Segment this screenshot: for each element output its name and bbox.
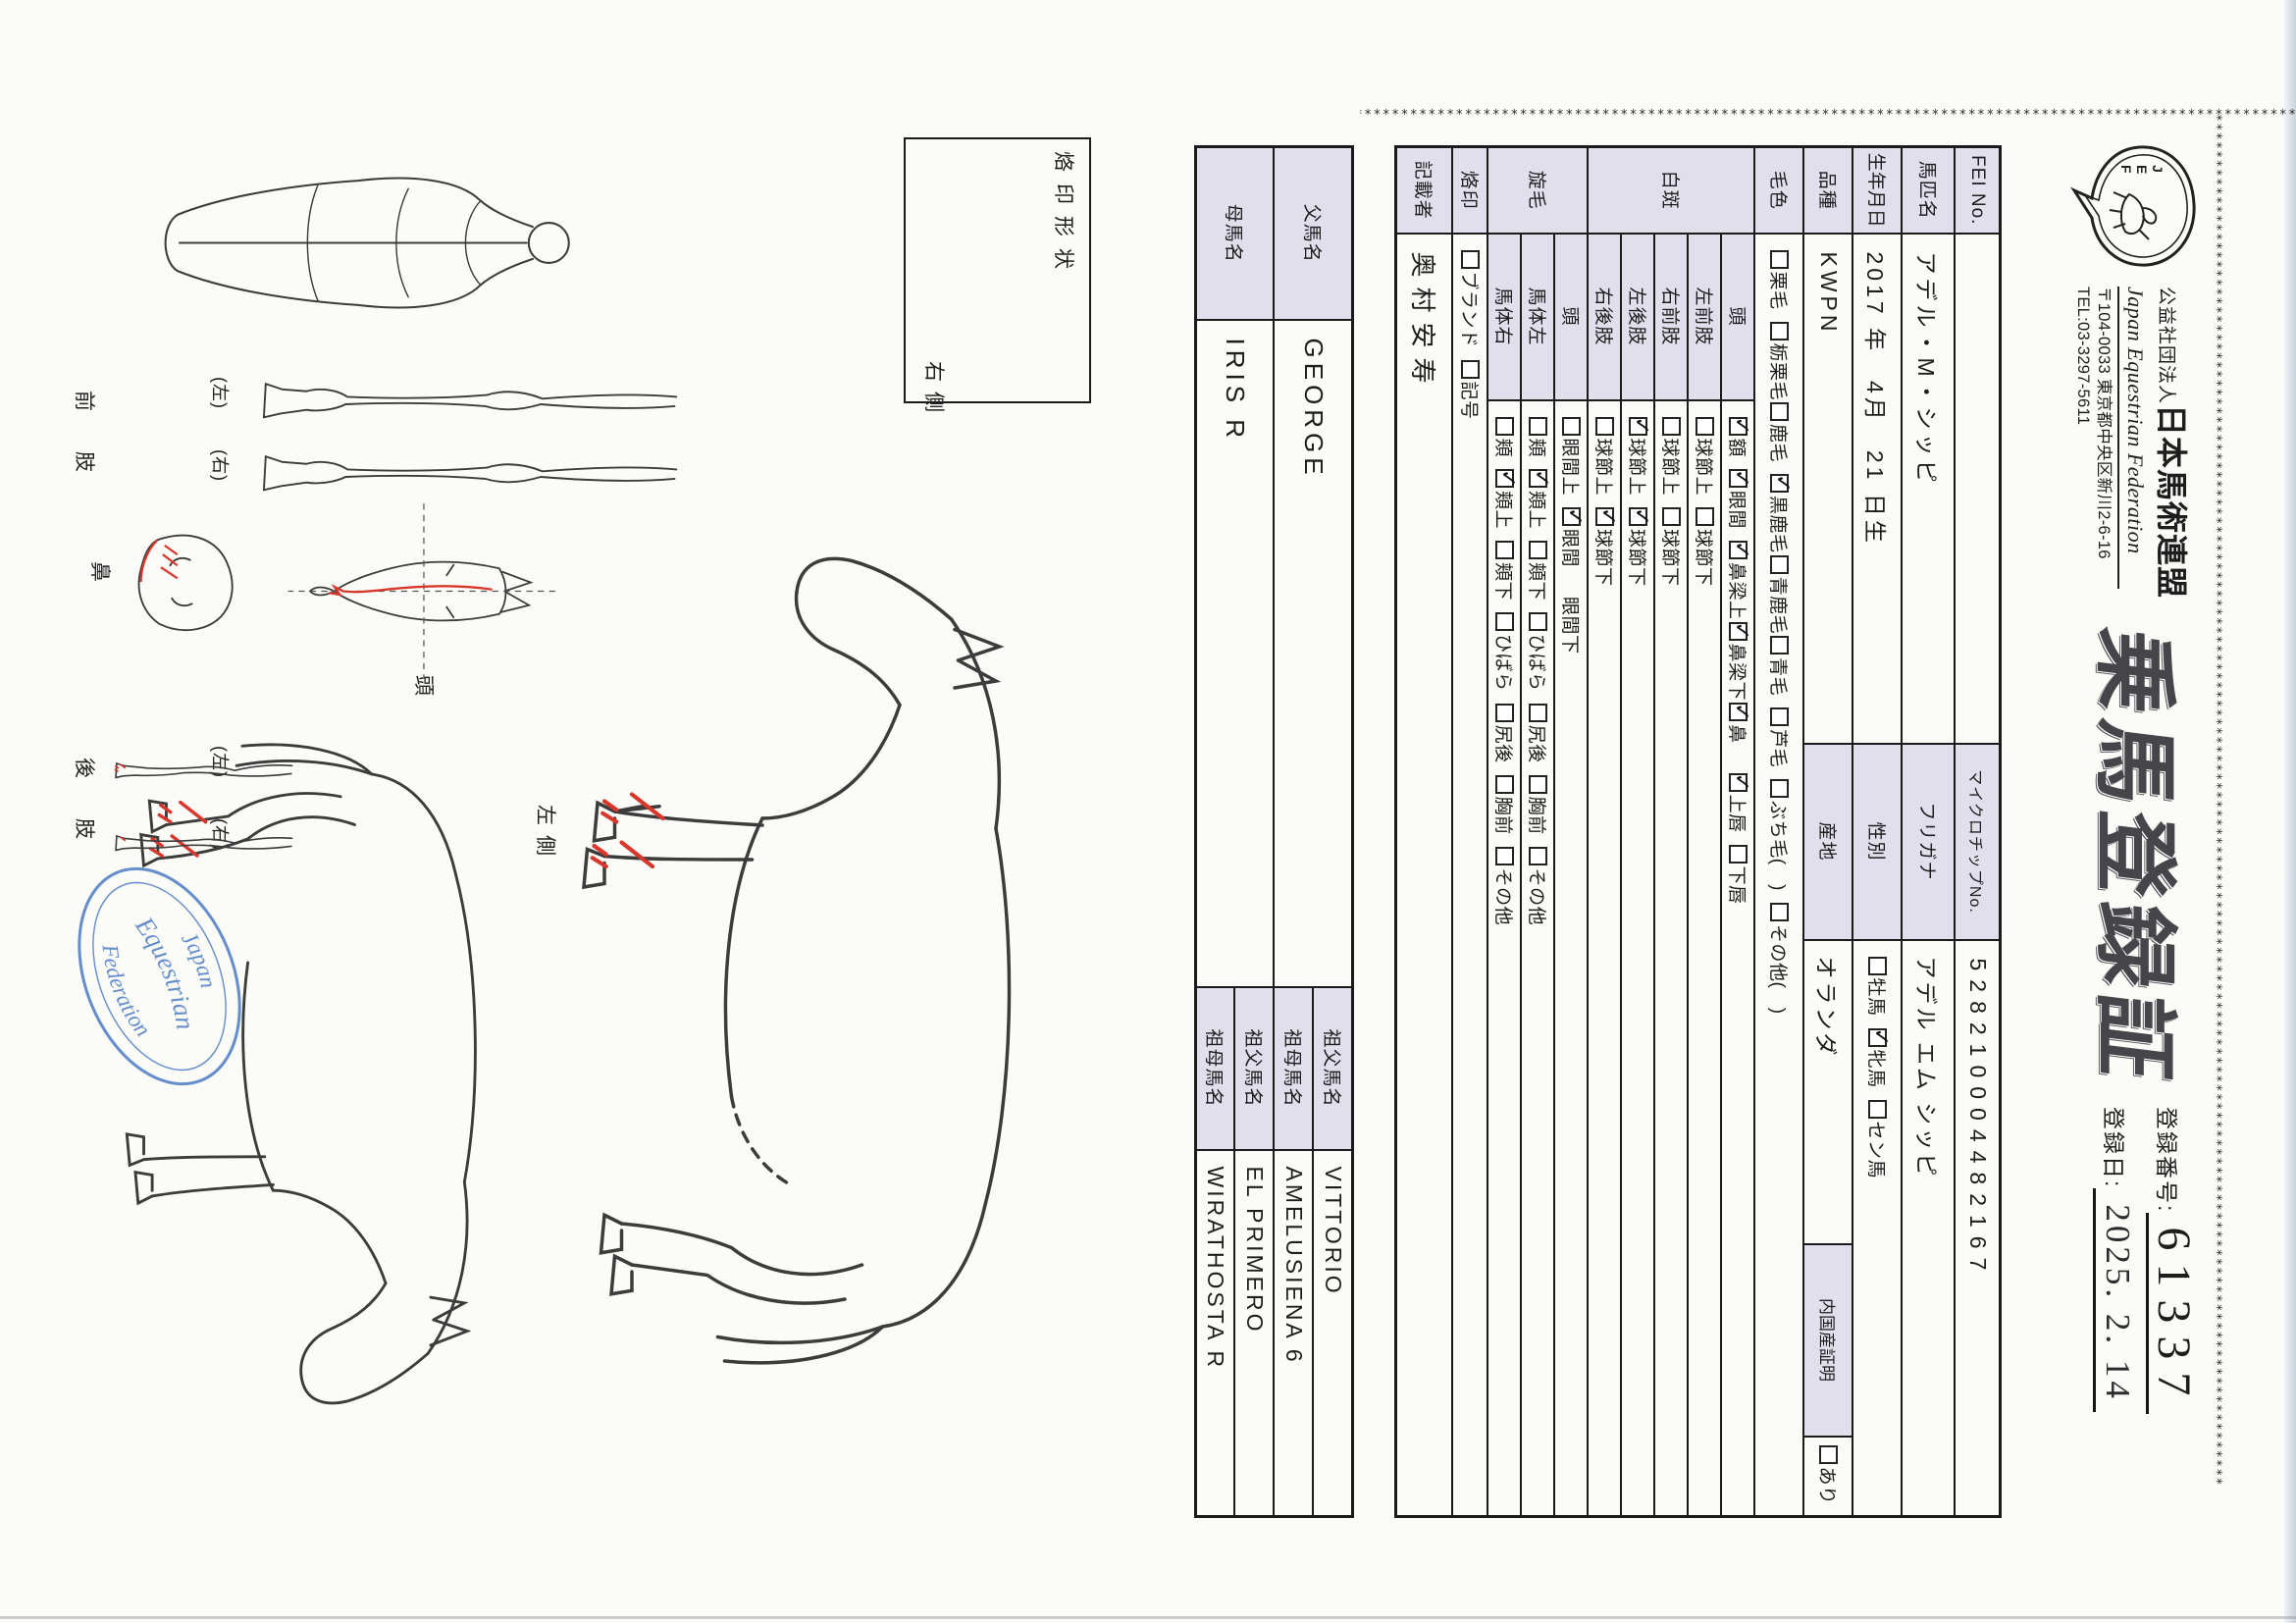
table-row: 左後肢 球節上球節下 — [1622, 147, 1655, 1517]
whorl-body-right-label: 馬体右 — [1488, 234, 1522, 400]
checkbox-option: ひばら — [1491, 612, 1518, 692]
origin-label: 産地 — [1804, 744, 1853, 940]
checkbox-option: 球節下 — [1658, 507, 1685, 587]
red-muzzle-marking — [141, 540, 178, 582]
checkbox-option-label: 鼻梁上 — [1725, 562, 1751, 620]
checkbox-option-label: ひばら — [1491, 634, 1518, 692]
checkbox-option-label: 牡馬 — [1864, 978, 1891, 1017]
checkbox-option: 鼻 — [1725, 703, 1751, 744]
checkbox-option-label: 頬 — [1525, 439, 1551, 458]
table-row: FEI No. マイクロチップNo. 528210004482167 — [1956, 147, 2001, 1517]
fei-no-value — [1956, 234, 2001, 744]
checkbox-unchecked — [1662, 507, 1681, 526]
sire-granddam-name: AMELUSIENA 6 — [1275, 1150, 1314, 1517]
checkbox-unchecked — [1729, 845, 1748, 864]
table-row: 右前肢 球節上球節下 — [1655, 147, 1689, 1517]
wm-right-hind-options: 球節上球節下 — [1589, 400, 1622, 1517]
checkbox-option-label: ブランド — [1457, 272, 1484, 348]
horse-name-label: 馬匹名 — [1903, 147, 1956, 234]
checkbox-option: 眼間 — [1725, 469, 1751, 529]
table-row: 左前肢 球節上球節下 — [1689, 147, 1722, 1517]
checkbox-option-label: 球節下 — [1658, 529, 1685, 587]
registration-number-label: 登録番号: — [2146, 1107, 2185, 1213]
breed-label: 品種 — [1804, 147, 1853, 234]
asterisk-border-top: ****************************************… — [2208, 114, 2223, 1486]
checkbox-option: セン馬 — [1864, 1100, 1891, 1179]
checkbox-option-label: 眼間下 — [1558, 597, 1585, 654]
checkbox-unchecked — [1529, 775, 1547, 794]
front-limbs-label: 前 肢 — [71, 391, 100, 482]
checkbox-checked — [1495, 469, 1514, 488]
checkbox-unchecked — [1770, 779, 1789, 798]
coat-color-label: 毛色 — [1755, 147, 1804, 234]
white-markings-label: 白斑 — [1589, 147, 1755, 234]
checkbox-checked — [1729, 417, 1748, 436]
table-row: 白斑 頭 額眼間鼻梁上鼻梁下鼻上唇下唇 — [1722, 147, 1755, 1517]
registration-date-label: 登録日: — [2093, 1107, 2132, 1188]
checkbox-checked — [1729, 469, 1748, 488]
checkbox-option-label: 下唇 — [1725, 866, 1751, 905]
checkbox-option-label: 青鹿毛 — [1766, 577, 1793, 635]
checkbox-checked — [1770, 474, 1789, 493]
checkbox-option: その他 — [1525, 847, 1551, 926]
checkbox-option: 上唇 — [1725, 773, 1751, 833]
checkbox-option-label: 鼻梁下 — [1725, 644, 1751, 702]
checkbox-option-label: 胸前 — [1491, 797, 1518, 835]
checkbox-option: 青毛 — [1766, 636, 1793, 696]
checkbox-option: 青鹿毛 — [1766, 555, 1793, 635]
checkbox-option-label: 額 — [1725, 439, 1751, 458]
checkbox-option-label: 球節上 — [1592, 439, 1618, 497]
hind-leg-left-view — [108, 744, 294, 799]
checkbox-option: 頬 — [1525, 417, 1551, 458]
sex-label: 性別 — [1853, 744, 1903, 940]
checkbox-checked — [1629, 417, 1647, 436]
sire-grandsire-name: VITTORIO — [1314, 1150, 1353, 1517]
checkbox-option-label: 鼻 — [1725, 724, 1751, 744]
table-row: 父馬名 GEORGE 祖父馬名 VITTORIO — [1314, 147, 1353, 1517]
pedigree-table: 父馬名 GEORGE 祖父馬名 VITTORIO 祖母馬名 AMELUSIENA… — [1194, 145, 1354, 1518]
checkbox-checked — [1595, 507, 1614, 526]
checkbox-option-label: ぶち毛( ) — [1766, 801, 1793, 891]
checkbox-option: 眼間 — [1558, 507, 1585, 567]
front-leg-right-view — [245, 447, 682, 506]
table-row: 毛色 栗毛栃栗毛鹿毛黒鹿毛青鹿毛青毛芦毛ぶち毛( )その他( ) — [1755, 147, 1804, 1517]
checkbox-unchecked — [1770, 903, 1789, 921]
brand-label: 烙印 — [1453, 147, 1488, 234]
checkbox-option: 球節下 — [1625, 507, 1651, 587]
checkbox-option-label: 芦毛 — [1766, 729, 1793, 767]
checkbox-unchecked — [1696, 507, 1714, 526]
whorl-body-left-label: 馬体左 — [1522, 234, 1555, 400]
checkbox-unchecked — [1770, 402, 1789, 421]
checkbox-option: 眼間上 — [1558, 417, 1585, 497]
checkbox-option: 黒鹿毛 — [1766, 474, 1793, 553]
checkbox-option: 尻後 — [1525, 704, 1551, 763]
checkbox-option-label: その他 — [1491, 868, 1518, 926]
checkbox-unchecked — [1868, 1100, 1887, 1119]
whorl-body-left-options: 頬頬上頬下ひばら尻後胸前その他 — [1522, 400, 1555, 1517]
checkbox-option: 頬上 — [1525, 469, 1551, 529]
checkbox-option: 芦毛 — [1766, 707, 1793, 767]
checkbox-option: ブランド — [1457, 250, 1484, 348]
checkbox-option: あり — [1815, 1445, 1842, 1505]
checkbox-option: 牡馬 — [1864, 957, 1891, 1017]
checkbox-option-label: その他( ) — [1766, 924, 1793, 1015]
checkbox-option: 頬下 — [1491, 541, 1518, 601]
checkbox-option: 記号 — [1457, 360, 1484, 420]
checkbox-option: 球節上 — [1692, 417, 1718, 497]
front-right-paren: (右) — [208, 449, 234, 482]
checkbox-checked — [1729, 773, 1748, 792]
checkbox-checked — [1729, 541, 1748, 559]
checkbox-option-label: 尻後 — [1491, 725, 1518, 763]
table-row: 烙印 ブランド記号 — [1453, 147, 1488, 1517]
dam-grandsire-name: EL PRIMERO — [1235, 1150, 1275, 1517]
birthdate-label: 生年月日 — [1853, 147, 1903, 234]
wm-head-options: 額眼間鼻梁上鼻梁下鼻上唇下唇 — [1722, 400, 1755, 1517]
scan-edge-artifact — [2284, 0, 2296, 1623]
table-row: 生年月日 2017 年 4月 21 日生 性別 牡馬牝馬セン馬 — [1853, 147, 1903, 1517]
jef-stamp: Japan Equestrian Federation — [74, 854, 245, 1099]
page-title: 乗馬登録証 — [2081, 622, 2204, 1093]
wm-right-hind-label: 右後肢 — [1589, 234, 1622, 400]
checkbox-option: 球節下 — [1592, 507, 1618, 587]
wm-left-hind-label: 左後肢 — [1622, 234, 1655, 400]
scanned-certificate: ****************************************… — [0, 0, 2296, 1623]
logo-jef-text: JEF — [2118, 165, 2166, 174]
checkbox-option-label: あり — [1815, 1467, 1842, 1505]
org-address: 〒104-0033 東京都中央区新川2-6-16 — [2093, 287, 2113, 610]
sex-options: 牡馬牝馬セン馬 — [1853, 940, 1903, 1517]
org-name: 日本馬術連盟 — [2154, 404, 2189, 599]
table-row: 馬匹名 アデル・M・シッピ フリガナ アデル エム シッピ — [1903, 147, 1956, 1517]
wm-right-fore-label: 右前肢 — [1655, 234, 1689, 400]
checkbox-unchecked — [1461, 250, 1480, 269]
domestic-cert-option: あり — [1804, 1437, 1853, 1517]
checkbox-unchecked — [1529, 417, 1547, 436]
front-leg-left-view — [245, 375, 682, 434]
dam-granddam-name: WIRATHOSTA R — [1196, 1150, 1235, 1517]
checkbox-option: 球節下 — [1692, 507, 1718, 587]
fei-no-label: FEI No. — [1956, 147, 2001, 234]
checkbox-option: 球節上 — [1592, 417, 1618, 497]
red-blaze-marking — [330, 586, 493, 595]
horse-attribute-table: FEI No. マイクロチップNo. 528210004482167 馬匹名 ア… — [1394, 145, 2002, 1518]
dam-name: IRIS R — [1196, 320, 1275, 987]
furigana-value: アデル エム シッピ — [1903, 940, 1956, 1517]
table-row: 記載者 奥村安寿 — [1396, 147, 1453, 1517]
checkbox-option-label: 胸前 — [1525, 797, 1551, 835]
wm-right-fore-options: 球節上球節下 — [1655, 400, 1689, 1517]
checkbox-option: 鼻梁下 — [1725, 622, 1751, 702]
checkbox-unchecked — [1495, 704, 1514, 722]
checkbox-option: 頬上 — [1491, 469, 1518, 529]
checkbox-checked — [1729, 622, 1748, 641]
sire-granddam-label: 祖母馬名 — [1275, 987, 1314, 1150]
checkbox-option-label: 栃栗毛 — [1766, 343, 1793, 401]
breed-value: KWPN — [1804, 234, 1853, 744]
checkbox-unchecked — [1529, 704, 1547, 722]
checkbox-option: 下唇 — [1725, 845, 1751, 905]
table-row: 馬体左 頬頬上頬下ひばら尻後胸前その他 — [1522, 147, 1555, 1517]
sire-name: GEORGE — [1275, 320, 1353, 987]
checkbox-option: 球節上 — [1625, 417, 1651, 497]
checkbox-checked — [1629, 507, 1647, 526]
checkbox-unchecked — [1529, 612, 1547, 631]
right-side-label: 右側 — [920, 361, 950, 422]
jef-logo: JEF — [2070, 139, 2200, 273]
checkbox-checked — [1562, 507, 1581, 526]
checkbox-option: 胸前 — [1525, 775, 1551, 835]
checkbox-unchecked — [1770, 250, 1789, 269]
asterisk-border-left: ****************************************… — [1360, 100, 2296, 116]
checkbox-option-label: 鹿毛 — [1766, 424, 1793, 462]
birthdate-value: 2017 年 4月 21 日生 — [1853, 234, 1903, 744]
microchip-number: 528210004482167 — [1956, 940, 2001, 1517]
checkbox-option: その他( ) — [1766, 903, 1793, 1015]
checkbox-option-label: 眼間上 — [1558, 439, 1585, 497]
checkbox-unchecked — [1770, 555, 1789, 574]
checkbox-checked — [1529, 469, 1547, 488]
checkbox-option-label: 球節上 — [1692, 439, 1718, 497]
checkbox-unchecked — [1595, 417, 1614, 436]
brand-options: ブランド記号 — [1453, 234, 1488, 1517]
checkbox-unchecked — [1495, 612, 1514, 631]
checkbox-option: 鼻梁上 — [1725, 541, 1751, 620]
checkbox-option: 胸前 — [1491, 775, 1518, 835]
wm-left-fore-label: 左前肢 — [1689, 234, 1722, 400]
logo-horse-rider-icon — [2110, 192, 2156, 239]
checkbox-unchecked — [1770, 322, 1789, 340]
checkbox-unchecked — [1819, 1445, 1838, 1464]
checkbox-option: 眼間下 — [1558, 597, 1585, 654]
horse-name-value: アデル・M・シッピ — [1903, 234, 1956, 744]
sire-label: 父馬名 — [1275, 147, 1353, 320]
checkbox-unchecked — [1495, 417, 1514, 436]
checkbox-unchecked — [1529, 541, 1547, 559]
checkbox-checked — [1868, 1028, 1887, 1047]
checkbox-option-label: 球節下 — [1625, 529, 1651, 587]
wm-left-fore-options: 球節上球節下 — [1689, 400, 1722, 1517]
left-side-label: 左側 — [532, 805, 561, 865]
certificate-sheet: ****************************************… — [0, 0, 2296, 1623]
checkbox-unchecked — [1562, 417, 1581, 436]
checkbox-option: 尻後 — [1491, 704, 1518, 763]
checkbox-unchecked — [1461, 360, 1480, 379]
checkbox-unchecked — [1495, 775, 1514, 794]
table-row: 品種 KWPN 産地 オランダ 内国産証明 あり — [1804, 147, 1853, 1517]
whorl-body-right-options: 頬頬上頬下ひばら尻後胸前その他 — [1488, 400, 1522, 1517]
checkbox-option-label: 尻後 — [1525, 725, 1551, 763]
furigana-label: フリガナ — [1903, 744, 1956, 940]
checkbox-option: 頬 — [1491, 417, 1518, 458]
sire-grandsire-label: 祖父馬名 — [1314, 987, 1353, 1150]
checkbox-unchecked — [1662, 417, 1681, 436]
checkbox-unchecked — [1495, 847, 1514, 865]
dam-label: 母馬名 — [1196, 147, 1275, 320]
org-telephone: TEL:03-3297-5611 — [2073, 287, 2094, 610]
recorder-label: 記載者 — [1396, 147, 1453, 234]
nose-label: 鼻 — [86, 561, 116, 592]
coat-color-options: 栗毛栃栗毛鹿毛黒鹿毛青鹿毛青毛芦毛ぶち毛( )その他( ) — [1755, 234, 1804, 1517]
checkbox-option-label: 頬下 — [1491, 562, 1518, 601]
registration-number: 61337 — [2146, 1213, 2198, 1414]
horse-top-view — [137, 128, 579, 358]
checkbox-option-label: 頬下 — [1525, 562, 1551, 601]
registration-date: 2025. 2. 14 — [2093, 1188, 2136, 1412]
checkbox-unchecked — [1495, 541, 1514, 559]
checkbox-option-label: 眼間 — [1558, 529, 1585, 567]
recorder-name: 奥村安寿 — [1396, 234, 1453, 1517]
org-block: 公益社団法人日本馬術連盟 Japan Equestrian Federation… — [2073, 287, 2196, 610]
checkbox-unchecked — [1529, 847, 1547, 865]
checkbox-option-label: 頬上 — [1525, 491, 1551, 529]
checkbox-option: 額 — [1725, 417, 1751, 458]
table-row: 馬体右 頬頬上頬下ひばら尻後胸前その他 — [1488, 147, 1522, 1517]
table-row: 右後肢 球節上球節下 — [1589, 147, 1622, 1517]
checkbox-option-label: 球節上 — [1625, 439, 1651, 497]
wm-head-label: 頭 — [1722, 234, 1755, 400]
checkbox-checked — [1729, 703, 1748, 721]
checkbox-option-label: 黒鹿毛 — [1766, 496, 1793, 553]
whorls-label: 旋毛 — [1488, 147, 1589, 234]
whorl-head-options: 眼間上眼間眼間下 — [1555, 400, 1589, 1517]
org-prefix: 公益社団法人 — [2156, 287, 2176, 404]
checkbox-option-label: 頬上 — [1491, 491, 1518, 529]
dam-grandsire-label: 祖父馬名 — [1235, 987, 1275, 1150]
domestic-cert-label: 内国産証明 — [1804, 1244, 1853, 1437]
org-underline — [2117, 287, 2119, 589]
horse-right-side-view — [584, 422, 1065, 1462]
checkbox-option-label: 記号 — [1457, 382, 1484, 420]
checkbox-option: 頬下 — [1525, 541, 1551, 601]
microchip-label: マイクロチップNo. — [1956, 744, 2001, 940]
checkbox-option: 鹿毛 — [1766, 402, 1793, 462]
registration-block: 登録番号: 61337 登録日: 2025. 2. 14 — [2093, 1107, 2198, 1414]
brand-shape-label: 烙印形状 — [1050, 151, 1079, 401]
checkbox-unchecked — [1770, 636, 1789, 654]
checkbox-option-label: その他 — [1525, 868, 1551, 926]
checkbox-option: その他 — [1491, 847, 1518, 926]
checkbox-option-label: セン馬 — [1864, 1122, 1891, 1179]
horse-head-front-view — [299, 530, 540, 653]
checkbox-option: 球節上 — [1658, 417, 1685, 497]
checkbox-option-label: ひばら — [1525, 634, 1551, 692]
wm-left-hind-options: 球節上球節下 — [1622, 400, 1655, 1517]
checkbox-option-label: 球節下 — [1592, 529, 1618, 587]
checkbox-option-label: 眼間 — [1725, 491, 1751, 529]
checkbox-option-label: 球節下 — [1692, 529, 1718, 587]
checkbox-option: 栃栗毛 — [1766, 322, 1793, 401]
checkbox-option-label: 栗毛 — [1766, 272, 1793, 310]
hind-limbs-label: 後 肢 — [71, 758, 100, 849]
checkbox-unchecked — [1696, 417, 1714, 436]
checkbox-option-label: 上唇 — [1725, 795, 1751, 833]
whorl-head-label: 頭 — [1555, 234, 1589, 400]
table-row: 旋毛 頭 眼間上眼間眼間下 — [1555, 147, 1589, 1517]
checkbox-unchecked — [1770, 707, 1789, 726]
org-name-english: Japan Equestrian Federation — [2122, 287, 2148, 610]
checkbox-option-label: 頬 — [1491, 439, 1518, 458]
checkbox-option: 栗毛 — [1766, 250, 1793, 310]
horse-muzzle-view — [128, 518, 247, 646]
checkbox-option: ひばら — [1525, 612, 1551, 692]
origin-value: オランダ — [1804, 940, 1853, 1244]
scan-edge-line — [0, 1616, 2296, 1619]
checkbox-option-label: 球節上 — [1658, 439, 1685, 497]
table-row: 母馬名 IRIS R 祖父馬名 EL PRIMERO — [1235, 147, 1275, 1517]
checkbox-option: 牝馬 — [1864, 1028, 1891, 1088]
checkbox-option-label: 青毛 — [1766, 657, 1793, 696]
checkbox-option-label: 牝馬 — [1864, 1050, 1891, 1088]
checkbox-option: ぶち毛( ) — [1766, 779, 1793, 891]
checkbox-unchecked — [1868, 957, 1887, 975]
front-left-paren: (左) — [208, 377, 234, 409]
dam-granddam-label: 祖母馬名 — [1196, 987, 1235, 1150]
